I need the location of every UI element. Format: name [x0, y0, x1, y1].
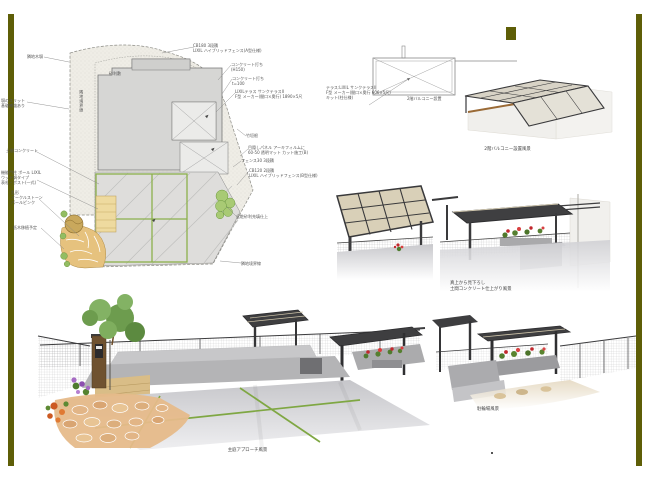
plan-annotation: CB180 3段積 LIXIL ハイブリッドフェンス(A型仕様)	[193, 43, 262, 53]
plan-annotation: コンクリート打ち (H150)	[231, 62, 263, 72]
plan-annotation: LIXILテラス サンクテラスII F型 メーカー(間口×奥行) 1890×5尺	[235, 89, 302, 99]
balcony-render	[465, 80, 612, 139]
entrance-steps	[96, 196, 116, 232]
balcony-plan-label: 2階バルコニー設置	[407, 96, 441, 101]
plan-annotation: 砂利敷	[109, 71, 121, 76]
plan-annotation: 隣地境界線	[241, 261, 261, 266]
pergola-top-view	[432, 194, 610, 292]
tree-symbol	[65, 215, 83, 233]
bike-area-render	[432, 315, 636, 410]
bike-view-caption: 駐輪場風景	[457, 406, 519, 412]
balcony-stub	[402, 46, 405, 58]
edge-pergola-beam	[432, 197, 458, 200]
sheet-artwork	[0, 0, 650, 480]
right-mesh-fence	[560, 336, 636, 382]
plan-annotation: CB120 2段積 LIXIL ハイブリッドフェンス(B型仕様)	[249, 168, 318, 178]
plan-annotation: フェンス30 3段積	[241, 158, 274, 163]
deck-area-1	[172, 102, 216, 140]
plan-annotation: 化粧砂利充填仕上	[236, 214, 268, 219]
plan-annotation: 隣地木塀	[27, 54, 43, 59]
wall-recess	[300, 358, 322, 374]
plan-annotation: 竹垣根	[246, 133, 258, 138]
balcony-spec-label: テラス:LIXIL サンクテラスII F型 メーカー(間口×奥行 606×5尺)…	[326, 85, 391, 101]
plan-annotation: 塀のスリット 基礎補強あり	[1, 98, 25, 108]
site-plan	[27, 45, 253, 268]
plan-annotation: 低木移植予定	[13, 225, 37, 230]
garden-approach-render	[38, 294, 430, 450]
plan-annotation: コンクリート打ち t=100	[232, 76, 264, 86]
terrace-views-caption: 真上から見下ろし 土間コンクリート仕上がり風景	[450, 280, 511, 292]
left-mesh-fence	[38, 336, 90, 398]
garden-view-caption: 主庭アプローチ風景	[195, 447, 300, 453]
deck-area-2	[180, 142, 228, 174]
plan-annotation-vertical: 隣地境界線	[79, 90, 84, 113]
plan-annotation: 機能門柱 ポール LIXIL ウッド調タイプ 表札・ポスト(一式)	[1, 170, 41, 186]
pergola-roof	[453, 204, 572, 223]
presentation-sheet: CB180 3段積 LIXIL ハイブリッドフェンス(A型仕様) コンクリート打…	[0, 0, 650, 480]
pergola-under-view	[337, 186, 433, 280]
plan-annotation: 土間コンクリート	[6, 148, 38, 153]
driveway-concrete	[95, 172, 240, 266]
house-upper-volume	[132, 59, 190, 70]
balcony-render-caption: 2階バルコニー設置風景	[460, 146, 555, 152]
page-dot	[491, 452, 493, 454]
plan-annotation: 目隠しパネル アーキフィルムに 60-50 透明マット カット施工(B)	[248, 145, 308, 155]
plan-annotation: 乱形 オークルストーン パールピンク	[11, 190, 43, 206]
